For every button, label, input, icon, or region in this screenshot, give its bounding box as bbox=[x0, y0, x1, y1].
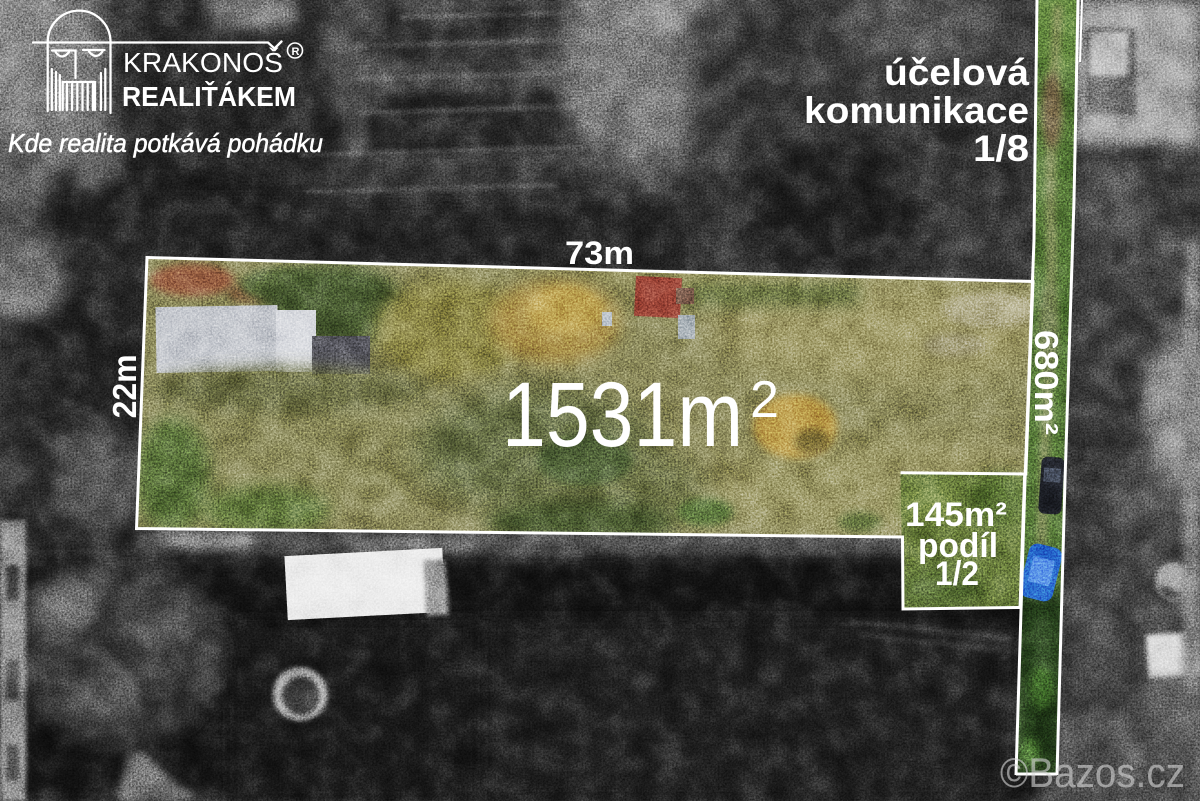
svg-text:komunikace: komunikace bbox=[804, 90, 1029, 131]
svg-text:1531m: 1531m bbox=[502, 364, 743, 466]
svg-text:2: 2 bbox=[750, 371, 779, 429]
svg-text:680m²: 680m² bbox=[1028, 330, 1065, 435]
svg-text:účelová: účelová bbox=[884, 52, 1029, 93]
svg-text:REALIŤÁKEM: REALIŤÁKEM bbox=[122, 81, 296, 112]
svg-text:KRAKONOŠ: KRAKONOŠ bbox=[123, 47, 283, 78]
svg-text:1/8: 1/8 bbox=[973, 128, 1029, 169]
svg-text:22m: 22m bbox=[106, 354, 143, 418]
svg-text:73m: 73m bbox=[565, 235, 634, 271]
svg-text:Kde realita potkává pohádku: Kde realita potkává pohádku bbox=[8, 128, 323, 158]
svg-text:1/2: 1/2 bbox=[935, 555, 979, 593]
svg-text:©Bazos.cz: ©Bazos.cz bbox=[1000, 749, 1185, 796]
svg-text:R: R bbox=[292, 46, 300, 58]
